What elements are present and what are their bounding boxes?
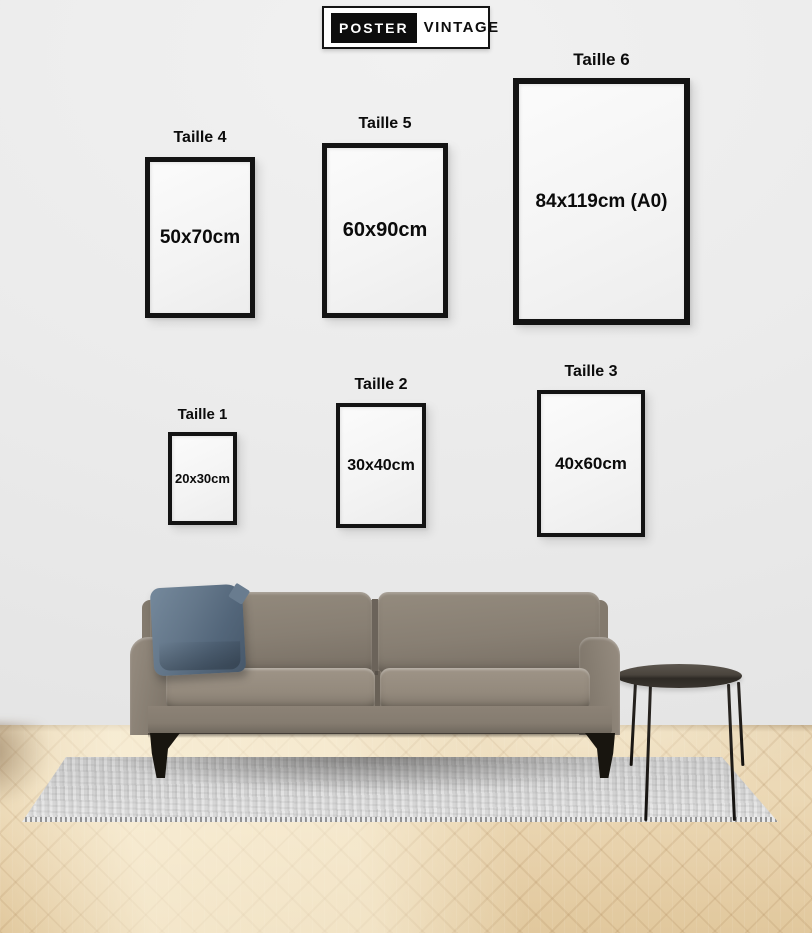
frame-title-taille-2: Taille 2 <box>336 376 426 394</box>
frame-title-taille-5: Taille 5 <box>322 115 448 133</box>
sofa-seat-cushion-gap <box>375 671 380 709</box>
frame-size-text-taille-5: 60x90cm <box>343 219 428 242</box>
sofa-back-cushion-right <box>378 592 600 672</box>
sofa-back-cushion-gap <box>372 599 378 675</box>
frame-title-taille-1: Taille 1 <box>168 406 237 423</box>
sofa-seat-cushion-right <box>380 668 590 710</box>
frame-size-text-taille-3: 40x60cm <box>555 454 627 474</box>
size-frame-taille-1: 20x30cm <box>168 432 237 525</box>
frame-size-text-taille-1: 20x30cm <box>175 471 230 486</box>
sofa-base <box>148 706 612 734</box>
sofa-leg-left <box>150 733 180 778</box>
sofa-seat-cushion-left <box>166 668 375 710</box>
sofa-base-shadow <box>148 733 612 738</box>
frame-title-taille-4: Taille 4 <box>145 129 255 147</box>
frame-title-taille-6: Taille 6 <box>513 50 690 70</box>
size-frame-taille-3: 40x60cm <box>537 390 645 537</box>
frame-size-text-taille-6: 84x119cm (A0) <box>535 191 667 213</box>
sofa-leg-right <box>585 733 615 778</box>
throw-pillow <box>150 584 246 677</box>
poster-size-guide-image: POSTER VINTAGE Taille 4 50x70cm Taille 5… <box>0 0 812 933</box>
side-table-top <box>616 664 742 688</box>
brand-logo-poster: POSTER <box>331 13 417 43</box>
size-frame-taille-4: 50x70cm <box>145 157 255 318</box>
frame-size-text-taille-2: 30x40cm <box>347 457 415 475</box>
frame-size-text-taille-4: 50x70cm <box>160 227 240 249</box>
sofa <box>127 585 623 780</box>
size-frame-taille-5: 60x90cm <box>322 143 448 318</box>
size-frame-taille-6: 84x119cm (A0) <box>513 78 690 325</box>
frame-title-taille-3: Taille 3 <box>537 363 645 381</box>
brand-logo: POSTER VINTAGE <box>322 6 490 49</box>
size-frame-taille-2: 30x40cm <box>336 403 426 528</box>
brand-logo-vintage: VINTAGE <box>424 19 500 36</box>
